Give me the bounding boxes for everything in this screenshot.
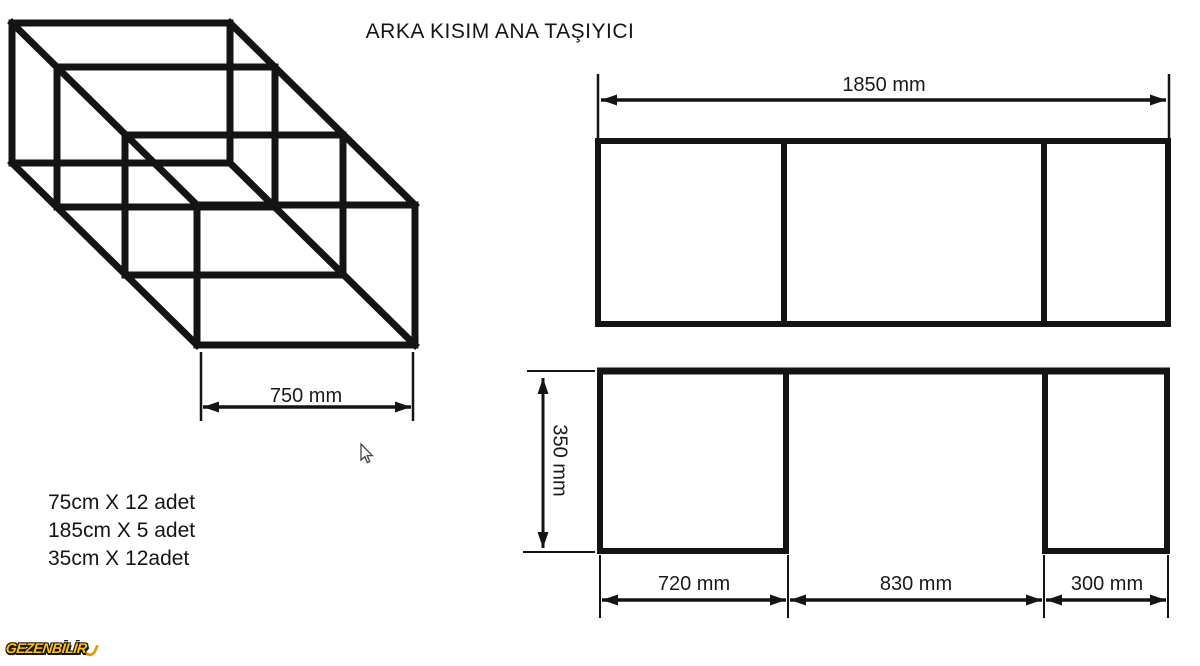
rail-top-right [230, 23, 415, 205]
dim-label-300: 300 mm [1047, 573, 1167, 596]
top-view [598, 74, 1169, 324]
materials-item: 75cm X 12 adet [48, 489, 195, 517]
materials-item: 185cm X 5 adet [48, 517, 195, 545]
rail-top-left [12, 23, 197, 205]
front-view [597, 371, 1170, 551]
front-right-box [1045, 371, 1167, 551]
drawing-canvas: ARKA KISIM ANA TAŞIYICI 750 mm 1850 mm 3… [0, 0, 1200, 666]
dim-label-1850: 1850 mm [824, 74, 944, 97]
page-title: ARKA KISIM ANA TAŞIYICI [340, 20, 660, 44]
dim-label-750: 750 mm [246, 385, 366, 408]
frame-near-face [12, 23, 230, 163]
rail-bottom-left [12, 163, 197, 345]
dim-label-720: 720 mm [634, 573, 754, 596]
isometric-frame [12, 23, 415, 345]
dim-label-350: 350 mm [548, 401, 571, 521]
gezenbilir-logo-text: GEZENBİLİR [5, 640, 87, 656]
gezenbilir-logo: GEZENBİLİR [5, 638, 98, 657]
mouse-cursor-icon [360, 443, 376, 465]
materials-list: 75cm X 12 adet 185cm X 5 adet 35cm X 12a… [48, 489, 195, 573]
front-left-box [600, 371, 786, 551]
rail-bottom-right [230, 163, 415, 345]
dim-label-830: 830 mm [856, 573, 976, 596]
materials-item: 35cm X 12adet [48, 545, 195, 573]
